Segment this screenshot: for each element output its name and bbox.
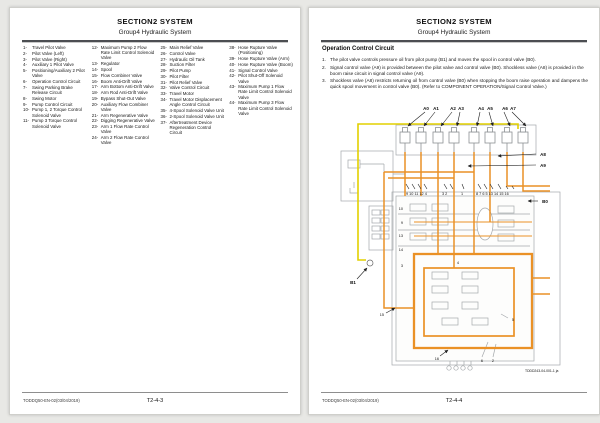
- parts-item: 35- 4-Spool Solenoid Valve Unit: [161, 108, 225, 113]
- parts-item: 32- Valve Control Circuit: [161, 85, 225, 90]
- figure-id: TDDD243-04-001-1 ja: [525, 369, 558, 373]
- side-number: 14: [399, 248, 403, 252]
- part-number: 18-: [92, 90, 101, 95]
- label-a4: A4: [478, 106, 484, 111]
- part-number: 37-: [161, 120, 170, 136]
- parts-item: 10- Pump 1, 2 Torque Control Solenoid Va…: [23, 107, 87, 117]
- part-name: Regulator: [101, 61, 156, 66]
- page-subtitle: Group4 Hydraulic System: [309, 29, 599, 36]
- part-number: 28-: [161, 62, 170, 67]
- part-name: Spool: [101, 67, 156, 72]
- parts-item: 27- Hydraulic Oil Tank: [161, 57, 225, 62]
- part-number: 31-: [161, 80, 170, 85]
- part-number: 11-: [23, 118, 32, 128]
- parts-item: 39- Hose Rupture Valve (Arm): [229, 56, 293, 61]
- side-number: 5: [512, 318, 514, 322]
- parts-item: 30- Pilot Filter: [161, 74, 225, 79]
- part-name: Auxiliary Flow Combiner Valve: [101, 102, 156, 112]
- part-number: 6-: [23, 79, 32, 84]
- parts-item: 13- Regulator: [92, 61, 156, 66]
- parts-item: 38- Hose Rupture Valve (Positioning): [229, 45, 293, 55]
- part-name: Auxiliary 1 Pilot Valve: [32, 62, 87, 67]
- part-number: 34-: [161, 97, 170, 107]
- part-name: Control Valve: [170, 51, 225, 56]
- port-numbers: 9 10 11 12 4 3 2 1 8 7 6 5 13 14 15 16: [406, 192, 509, 196]
- side-number: 13: [399, 234, 403, 238]
- part-number: 12-: [92, 45, 101, 61]
- side-number: 16: [435, 357, 439, 361]
- description-steps: 1. The pilot valve controls pressure oil…: [322, 57, 590, 92]
- part-number: 1-: [23, 45, 32, 50]
- part-name: Travel Motor: [170, 91, 225, 96]
- side-number: 3: [401, 264, 403, 268]
- parts-item: 26- Control Valve: [161, 51, 225, 56]
- part-number: 8-: [23, 96, 32, 101]
- label-a2: A2: [450, 106, 456, 111]
- part-name: Main Relief Valve: [170, 45, 225, 50]
- parts-item: 22- Digging Regenerative Valve: [92, 118, 156, 123]
- parts-item: 34- Travel Motor Displacement Angle Cont…: [161, 97, 225, 107]
- part-name: Travel Pilot Valve: [32, 45, 87, 50]
- section-heading: Operation Control Circuit: [322, 46, 394, 52]
- part-name: Pump Control Circuit: [32, 102, 87, 107]
- part-number: 29-: [161, 68, 170, 73]
- part-name: Pilot Valve (Right): [32, 57, 87, 62]
- part-name: Pilot Shut-Off Solenoid Valve: [238, 73, 293, 83]
- part-name: 2-Spool Solenoid Valve Unit: [170, 114, 225, 119]
- page-subtitle: Group4 Hydraulic System: [10, 29, 300, 36]
- parts-item: 36- 2-Spool Solenoid Valve Unit: [161, 114, 225, 119]
- parts-item: 1- Travel Pilot Valve: [23, 45, 87, 50]
- parts-item: 15- Flow Combiner Valve: [92, 73, 156, 78]
- parts-column-3: 25- Main Relief Valve 26- Control Valve …: [161, 45, 225, 146]
- description-step: 1. The pilot valve controls pressure oil…: [322, 57, 590, 63]
- parts-item: 16- Boom Anti-Drift Valve: [92, 79, 156, 84]
- parts-item: 28- Suction Filter: [161, 62, 225, 67]
- part-name: Hose Rupture Valve (Positioning): [238, 45, 293, 55]
- page-header: SECTION2 SYSTEM Group4 Hydraulic System: [10, 8, 300, 43]
- label-b1: B1: [350, 280, 356, 285]
- part-name: Pump 3 Torque Control Solenoid Valve: [32, 118, 87, 128]
- parts-item: 37- Aftertreatment Device Regeneration C…: [161, 120, 225, 136]
- part-name: Pilot Filter: [170, 74, 225, 79]
- parts-column-2: 12- Maximum Pump 2 Flow Rate Limit Contr…: [92, 45, 156, 146]
- part-name: Pump 1, 2 Torque Control Solenoid Valve: [32, 107, 87, 117]
- part-number: 21-: [92, 113, 101, 118]
- part-number: 3-: [23, 57, 32, 62]
- part-name: Arm Rod Anti-Drift Valve: [101, 90, 156, 95]
- pilot-valve-bank: [400, 128, 528, 153]
- part-number: 22-: [92, 118, 101, 123]
- parts-column-4: 38- Hose Rupture Valve (Positioning) 39-…: [229, 45, 293, 146]
- port-numbers-right: 8 7 6 5 13 14 15 16: [476, 192, 509, 196]
- part-number: 33-: [161, 91, 170, 96]
- port-numbers-mid: 3 2: [442, 192, 447, 196]
- part-name: Boom Anti-Drift Valve: [101, 79, 156, 84]
- parts-item: 8- Swing Motor: [23, 96, 87, 101]
- part-name: Digging Regenerative Valve: [101, 118, 156, 123]
- part-number: 40-: [229, 62, 238, 67]
- part-number: 7-: [23, 85, 32, 95]
- manual-page-left: SECTION2 SYSTEM Group4 Hydraulic System …: [9, 7, 301, 415]
- parts-item: 4- Auxiliary 1 Pilot Valve: [23, 62, 87, 67]
- part-number: 13-: [92, 61, 101, 66]
- side-number: 2: [492, 359, 494, 363]
- parts-item: 19- Bypass Shut-Out Valve: [92, 96, 156, 101]
- part-name: Travel Motor Displacement Angle Control …: [170, 97, 225, 107]
- footer-rule: [22, 392, 288, 393]
- part-name: Arm Bottom Anti-Drift Valve: [101, 84, 156, 89]
- label-b0: B0: [542, 199, 548, 204]
- part-number: 23-: [92, 124, 101, 134]
- part-name: Maximum Pump 3 Flow Rate Limit Control S…: [238, 100, 293, 116]
- label-a3: A3: [458, 106, 464, 111]
- parts-item: 42- Pilot Shut-Off Solenoid Valve: [229, 73, 293, 83]
- part-number: 10-: [23, 107, 32, 117]
- part-name: Hydraulic Oil Tank: [170, 57, 225, 62]
- parts-item: 33- Travel Motor: [161, 91, 225, 96]
- part-name: Bypass Shut-Out Valve: [101, 96, 156, 101]
- side-number: 9: [401, 221, 403, 225]
- parts-item: 24- Arm 2 Flow Rate Control Valve: [92, 135, 156, 145]
- part-number: 36-: [161, 114, 170, 119]
- parts-item: 44- Maximum Pump 3 Flow Rate Limit Contr…: [229, 100, 293, 116]
- part-name: Pilot Valve (Left): [32, 51, 87, 56]
- part-name: Swing Motor: [32, 96, 87, 101]
- parts-item: 7- Swing Parking Brake Release Circuit: [23, 85, 87, 95]
- parts-item: 31- Pilot Relief Valve: [161, 80, 225, 85]
- parts-item: 11- Pump 3 Torque Control Solenoid Valve: [23, 118, 87, 128]
- part-name: Operation Control Circuit: [32, 79, 87, 84]
- page-number: T2-4-3: [10, 398, 300, 404]
- header-rule: [22, 40, 288, 43]
- parts-item: 3- Pilot Valve (Right): [23, 57, 87, 62]
- part-name: Arm 2 Flow Rate Control Valve: [101, 135, 156, 145]
- part-number: 20-: [92, 102, 101, 112]
- part-name: Arm Regenerative Valve: [101, 113, 156, 118]
- part-number: 17-: [92, 84, 101, 89]
- port-number-one: 1: [461, 192, 463, 196]
- part-name: Hose Rupture Valve (Boom): [238, 62, 293, 67]
- part-number: 24-: [92, 135, 101, 145]
- side-number: 15: [380, 313, 384, 317]
- part-number: 43-: [229, 84, 238, 100]
- part-number: 26-: [161, 51, 170, 56]
- parts-item: 12- Maximum Pump 2 Flow Rate Limit Contr…: [92, 45, 156, 61]
- part-number: 32-: [161, 85, 170, 90]
- part-name: Aftertreatment Device Regeneration Contr…: [170, 120, 225, 136]
- gray-plumbing: [341, 125, 560, 370]
- parts-item: 18- Arm Rod Anti-Drift Valve: [92, 90, 156, 95]
- part-number: 5-: [23, 68, 32, 78]
- description-step: 3. Shockless valve (A8) restricts return…: [322, 78, 590, 90]
- part-name: Signal Control Valve: [238, 68, 293, 73]
- parts-item: 43- Maximum Pump 1 Flow Rate Limit Contr…: [229, 84, 293, 100]
- page-header: SECTION2 SYSTEM Group4 Hydraulic System: [309, 8, 599, 43]
- label-a1: A1: [433, 106, 439, 111]
- parts-item: 14- Spool: [92, 67, 156, 72]
- part-number: 9-: [23, 102, 32, 107]
- part-number: 35-: [161, 108, 170, 113]
- part-number: 4-: [23, 62, 32, 67]
- label-a9: A9: [540, 163, 546, 168]
- side-number: 4: [457, 261, 459, 265]
- label-a5: A5: [487, 106, 493, 111]
- part-number: 25-: [161, 45, 170, 50]
- label-a6: A6: [502, 106, 508, 111]
- port-numbers-left: 9 10 11 12 4: [406, 192, 427, 196]
- parts-item: 29- Pilot Pump: [161, 68, 225, 73]
- parts-item: 5- Positioning/Auxiliary 2 Pilot Valve: [23, 68, 87, 78]
- parts-item: 40- Hose Rupture Valve (Boom): [229, 62, 293, 67]
- side-number: 10: [399, 207, 403, 211]
- part-name: Arm 1 Flow Rate Control Valve: [101, 124, 156, 134]
- part-number: 38-: [229, 45, 238, 55]
- parts-item: 41- Signal Control Valve: [229, 68, 293, 73]
- part-number: 41-: [229, 68, 238, 73]
- page-title: SECTION2 SYSTEM: [10, 17, 300, 26]
- parts-item: 9- Pump Control Circuit: [23, 102, 87, 107]
- part-name: Positioning/Auxiliary 2 Pilot Valve: [32, 68, 87, 78]
- parts-item: 17- Arm Bottom Anti-Drift Valve: [92, 84, 156, 89]
- step-number: 1.: [322, 57, 330, 63]
- part-name: Hose Rupture Valve (Arm): [238, 56, 293, 61]
- part-number: 39-: [229, 56, 238, 61]
- part-name: Pilot Pump: [170, 68, 225, 73]
- part-name: Maximum Pump 1 Flow Rate Limit Control S…: [238, 84, 293, 100]
- step-text: Signal control valve (A9) is provided be…: [330, 65, 590, 77]
- side-number: 6: [481, 359, 483, 363]
- part-number: 42-: [229, 73, 238, 83]
- parts-column-1: 1- Travel Pilot Valve 2- Pilot Valve (Le…: [23, 45, 87, 146]
- label-a0: A0: [423, 106, 429, 111]
- step-text: Shockless valve (A8) restricts returning…: [330, 78, 590, 90]
- part-name: 4-Spool Solenoid Valve Unit: [170, 108, 225, 113]
- part-number: 2-: [23, 51, 32, 56]
- label-a7: A7: [510, 106, 516, 111]
- part-number: 15-: [92, 73, 101, 78]
- part-name: Pilot Relief Valve: [170, 80, 225, 85]
- document-viewer: { "left_page": { "title": "SECTION2 SYST…: [0, 0, 600, 423]
- step-text: The pilot valve controls pressure oil fr…: [330, 57, 590, 63]
- part-number: 14-: [92, 67, 101, 72]
- parts-item: 25- Main Relief Valve: [161, 45, 225, 50]
- page-number: T2-4-4: [309, 398, 599, 404]
- part-number: 30-: [161, 74, 170, 79]
- step-number: 3.: [322, 78, 330, 90]
- part-name: Suction Filter: [170, 62, 225, 67]
- footer-rule: [321, 392, 587, 393]
- parts-list: 1- Travel Pilot Valve 2- Pilot Valve (Le…: [23, 45, 293, 146]
- part-name: Valve Control Circuit: [170, 85, 225, 90]
- part-number: 27-: [161, 57, 170, 62]
- manual-page-right: SECTION2 SYSTEM Group4 Hydraulic System …: [308, 7, 600, 415]
- page-title: SECTION2 SYSTEM: [309, 17, 599, 26]
- part-number: 44-: [229, 100, 238, 116]
- parts-item: 20- Auxiliary Flow Combiner Valve: [92, 102, 156, 112]
- parts-item: 2- Pilot Valve (Left): [23, 51, 87, 56]
- part-number: 16-: [92, 79, 101, 84]
- parts-item: 6- Operation Control Circuit: [23, 79, 87, 84]
- label-a8: A8: [540, 152, 546, 157]
- hydraulic-circuit-diagram: A0 A1 A2 A3 A4 A5 A6 A7 A8 A9 B0 B1 9 10…: [322, 102, 598, 374]
- part-number: 19-: [92, 96, 101, 101]
- step-number: 2.: [322, 65, 330, 77]
- header-rule: [321, 40, 587, 43]
- part-name: Flow Combiner Valve: [101, 73, 156, 78]
- description-step: 2. Signal control valve (A9) is provided…: [322, 65, 590, 77]
- part-name: Swing Parking Brake Release Circuit: [32, 85, 87, 95]
- parts-item: 23- Arm 1 Flow Rate Control Valve: [92, 124, 156, 134]
- part-name: Maximum Pump 2 Flow Rate Limit Control S…: [101, 45, 156, 61]
- parts-item: 21- Arm Regenerative Valve: [92, 113, 156, 118]
